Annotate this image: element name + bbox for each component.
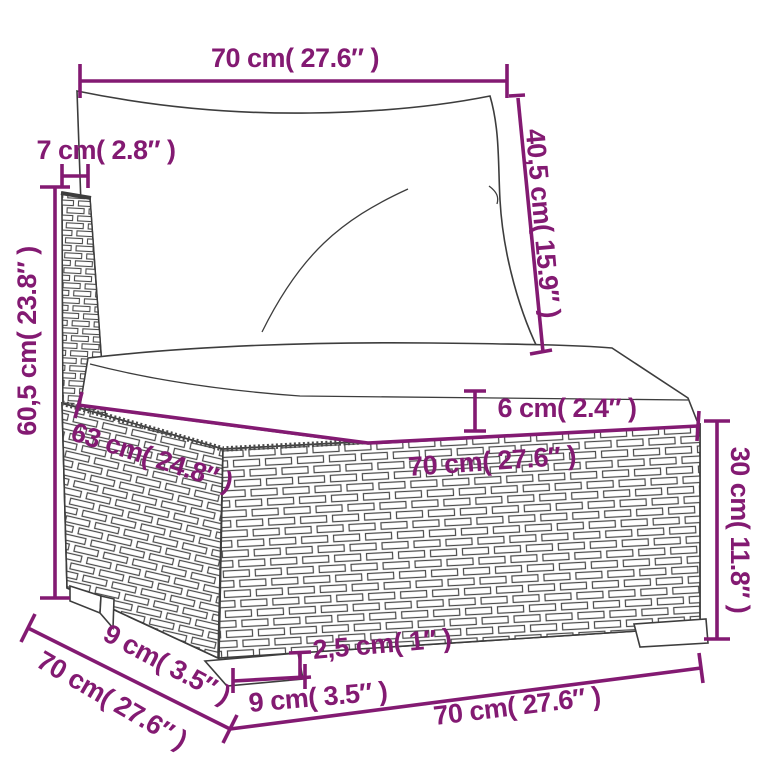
back-cushion-height-label: 40,5 cm( 15.9″ ) — [520, 127, 566, 318]
seat-thickness-label: 6 cm( 2.4″ ) — [498, 393, 637, 423]
foot-front-right — [634, 619, 708, 647]
back-width-label: 70 cm( 27.6″ ) — [211, 43, 379, 73]
dimension-diagram: 70 cm( 27.6″ ) 7 cm( 2.8″ ) 60,5 cm( 23.… — [0, 0, 767, 767]
sofa-dimension-drawing: 70 cm( 27.6″ ) 7 cm( 2.8″ ) 60,5 cm( 23.… — [0, 0, 767, 767]
total-width-label: 70 cm( 27.6″ ) — [432, 681, 602, 731]
base-height-label: 30 cm( 11.8″ ) — [725, 447, 755, 614]
total-height-label: 60,5 cm( 23.8″ ) — [12, 246, 42, 436]
back-thickness-label: 7 cm( 2.8″ ) — [37, 135, 176, 165]
sofa-section-art — [61, 91, 708, 686]
